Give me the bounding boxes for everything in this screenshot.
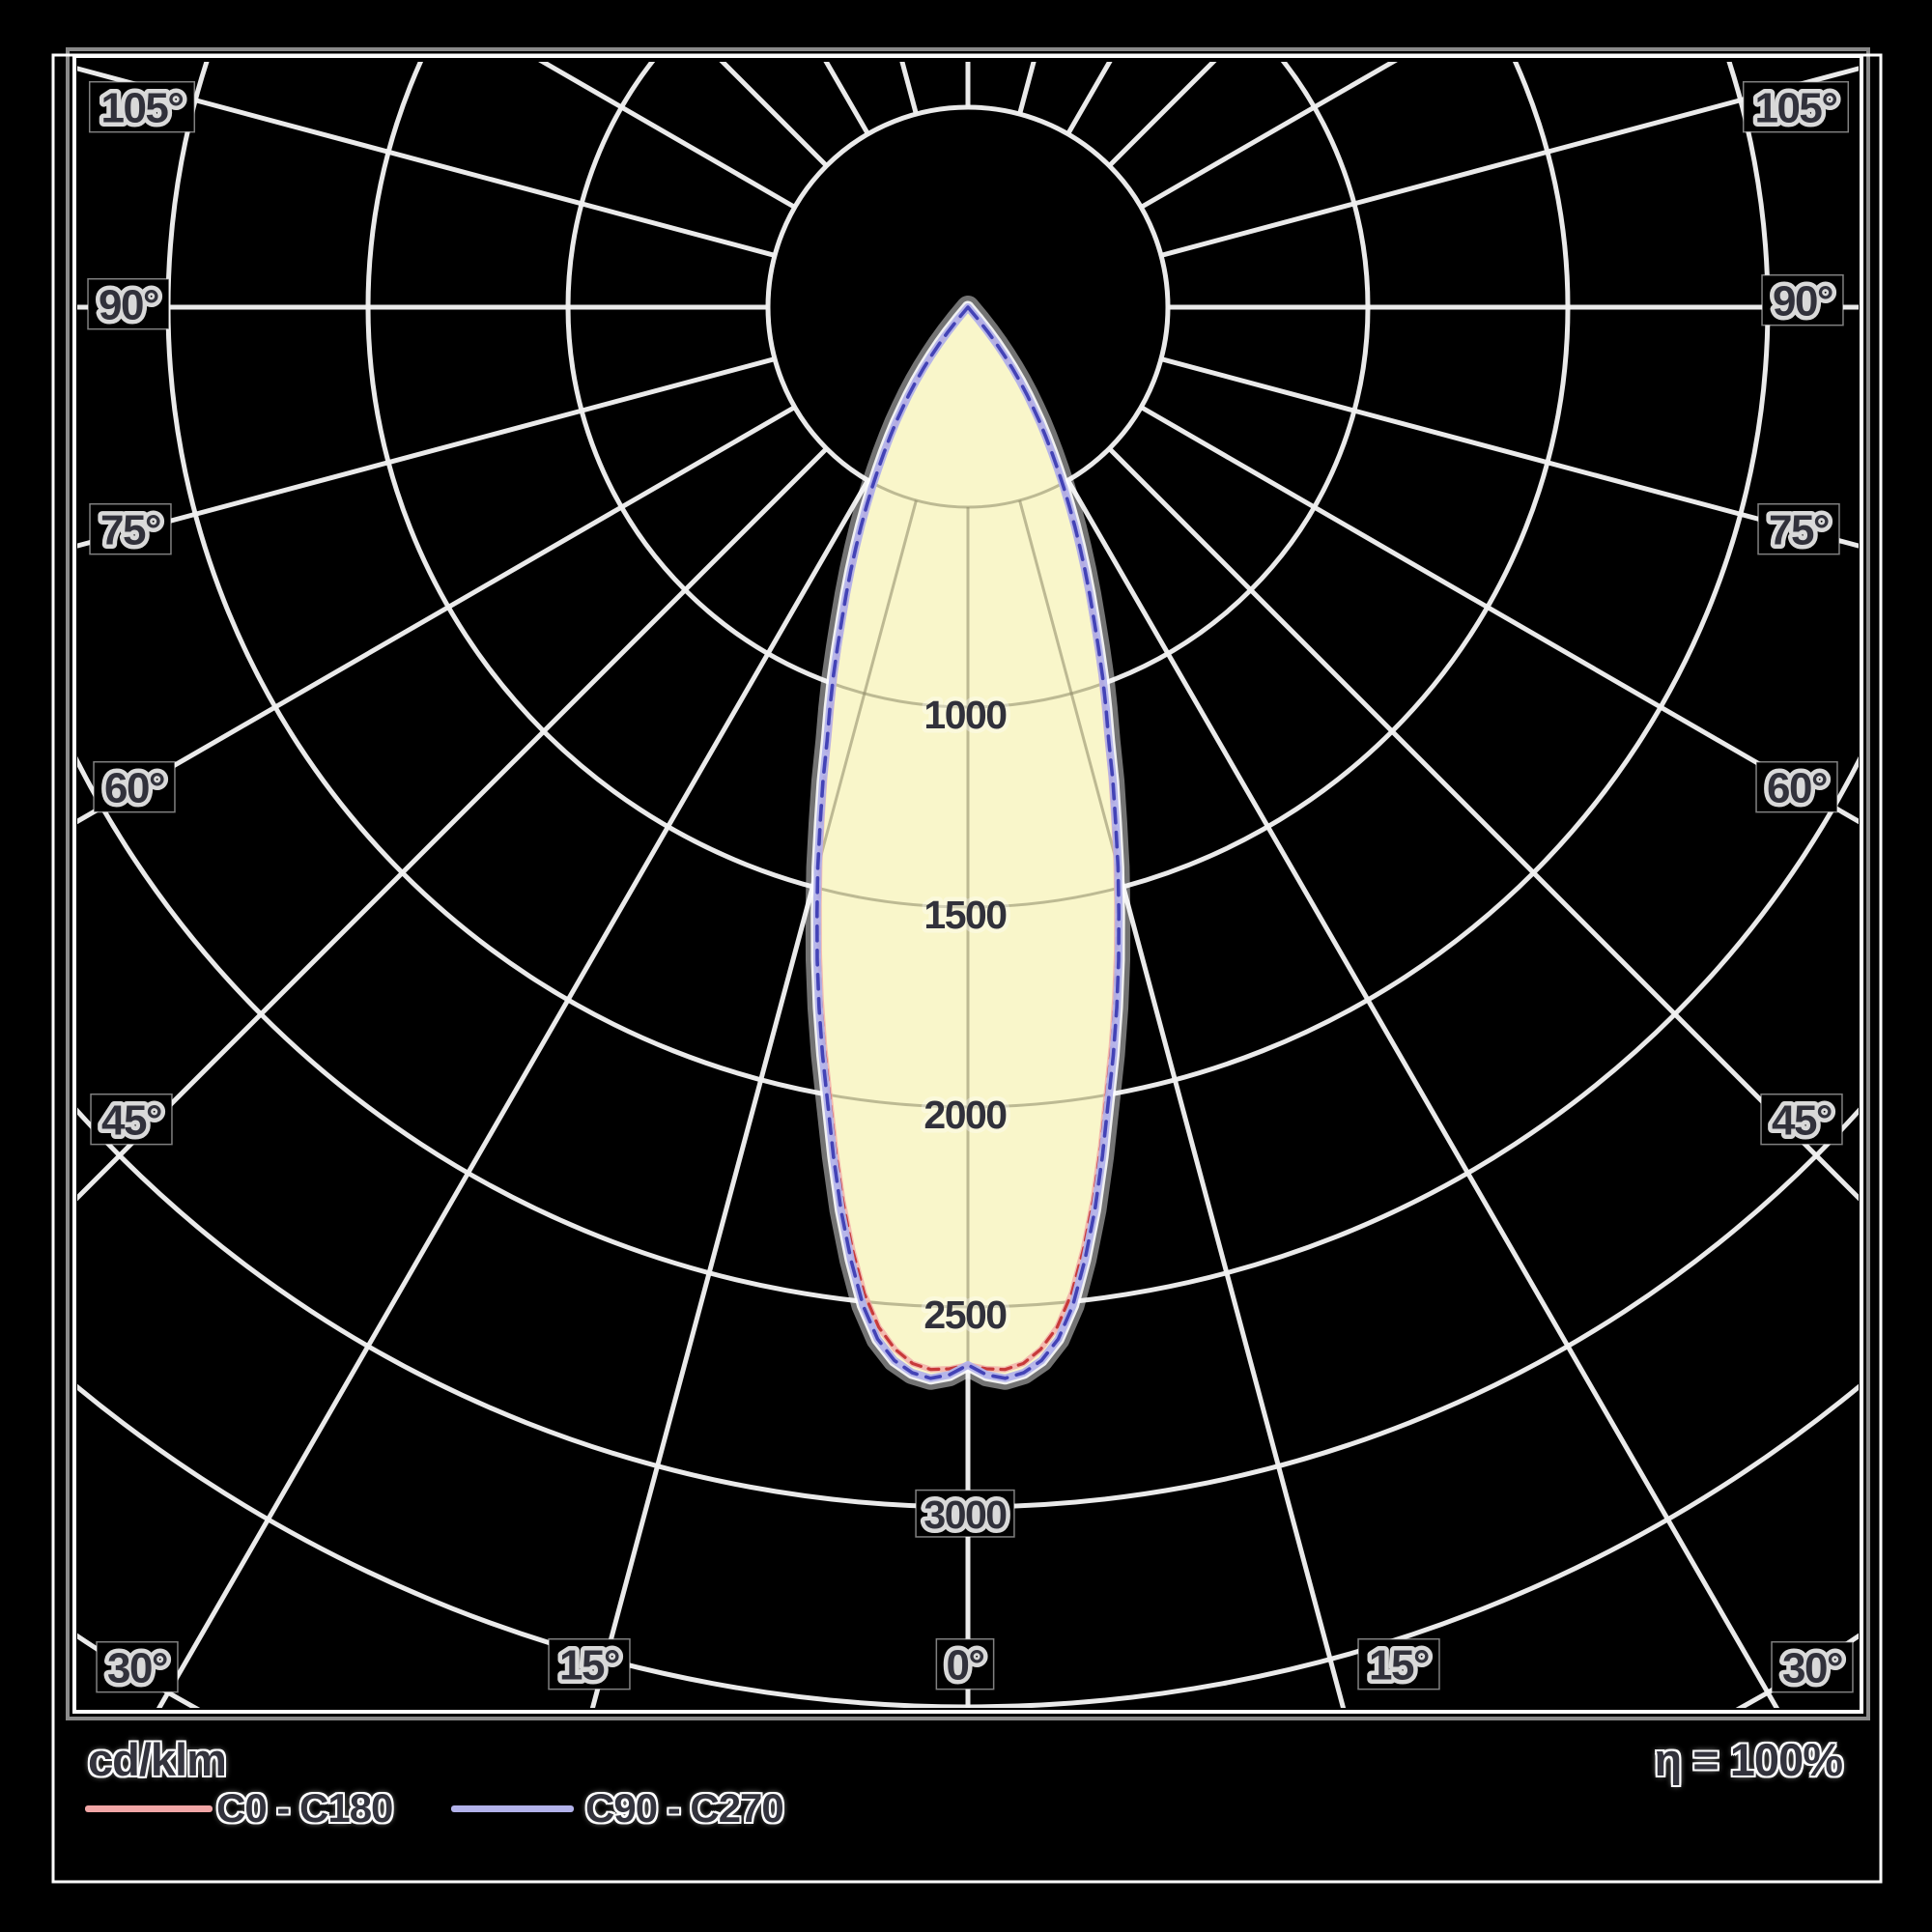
angle-label: 105° (100, 85, 183, 132)
angle-label: 105° (1754, 85, 1836, 132)
value-label: 1000 (923, 693, 1007, 737)
angle-label: 45° (101, 1097, 161, 1145)
angle-label: 90° (99, 282, 158, 329)
angle-label: 15° (1369, 1642, 1429, 1690)
legend-label-c0-c180: C0 - C180 (216, 1788, 392, 1829)
legend-swatch-c0-c180 (85, 1805, 213, 1812)
value-label: 1500 (923, 893, 1007, 937)
angle-label: 45° (1772, 1097, 1832, 1145)
angle-label: 75° (1769, 507, 1829, 554)
angle-label: 90° (1773, 278, 1833, 326)
photometric-polar-diagram: 105°105°90°90°75°75°60°60°45°45°30°30°15… (0, 0, 1932, 1932)
units-label: cd/klm (88, 1737, 226, 1782)
angle-label: 60° (1767, 765, 1827, 812)
value-label: 2000 (923, 1093, 1007, 1137)
legend-label-c90-c270: C90 - C270 (585, 1788, 783, 1829)
value-label: 2500 (923, 1293, 1007, 1337)
angle-label: 30° (1782, 1645, 1842, 1692)
efficiency-label: η = 100% (1449, 1737, 1842, 1782)
polar-chart: 105°105°90°90°75°75°60°60°45°45°30°30°15… (0, 0, 1932, 1932)
angle-label: 0° (946, 1642, 983, 1690)
angle-label: 30° (107, 1645, 167, 1692)
value-label: 3000 (923, 1492, 1007, 1537)
angle-label: 75° (100, 507, 160, 554)
angle-label: 15° (559, 1642, 619, 1690)
angle-label: 60° (104, 765, 164, 812)
legend-swatch-c90-c270 (451, 1805, 574, 1812)
